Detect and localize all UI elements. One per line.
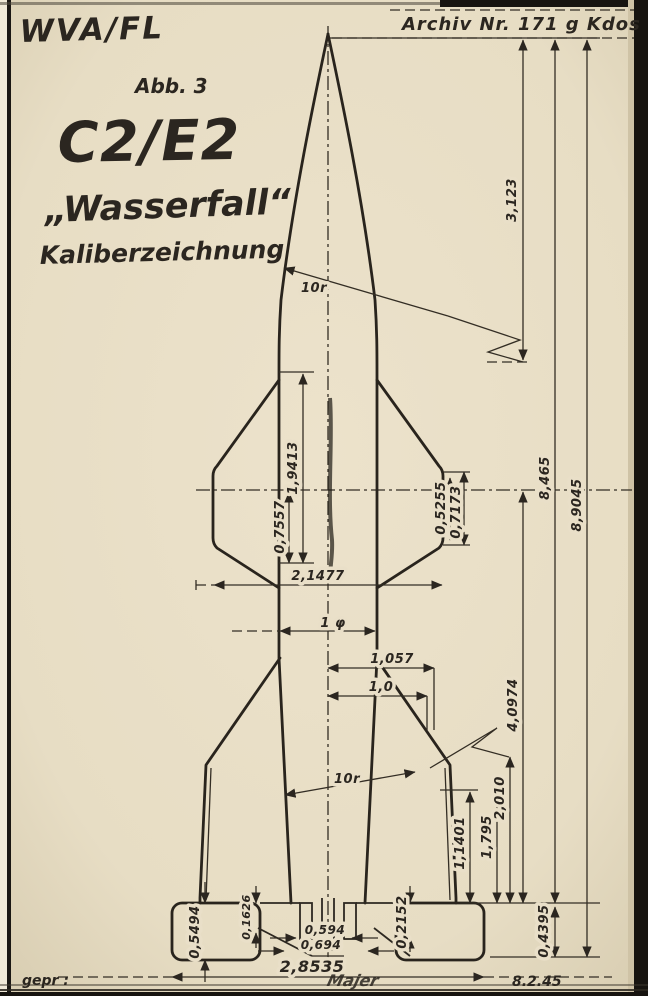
dim-01626: 0,1626 [240, 894, 253, 939]
signature: Majer [325, 971, 382, 990]
dim-05255: 0,5255 [434, 481, 449, 534]
nose-radius-label: 10r [301, 281, 328, 296]
dim-2010: 2,010 [493, 776, 508, 820]
caliber-drawing: WVA/FL Abb. 3 C2/E2 „Wasserfall“ Kaliber… [0, 0, 648, 996]
tail-radius-label: 10r [334, 772, 361, 787]
dim-02152: 0,2152 [395, 895, 410, 948]
date-label: 8.2.45 [512, 974, 562, 990]
dim-07173: 0,7173 [449, 485, 464, 538]
archive-number: Archiv Nr. 171 g Kdos [400, 14, 641, 35]
approved-label: gepr : [22, 973, 69, 989]
type-designation: C2/E2 [57, 108, 241, 176]
dim-caliber: 1 φ [320, 616, 345, 631]
dim-midfin-chord: 1,9413 [286, 441, 301, 494]
dim-midfin-lower: 0,7557 [273, 500, 288, 554]
figure-number: Abb. 3 [133, 74, 208, 98]
dim-1795: 1,795 [480, 815, 495, 859]
dim-length-to-base: 8,465 [538, 456, 553, 500]
dim-nose-length: 3,123 [505, 178, 520, 222]
dim-overall-length: 8,9045 [570, 478, 585, 531]
dim-11401: 1,1401 [453, 816, 468, 869]
org-label: WVA/FL [19, 10, 164, 50]
dim-base-height: 0,4395 [537, 904, 552, 957]
dim-rudder-box-height: 0,5494 [188, 905, 203, 958]
dim-nozzle-width: 0,594 [305, 923, 345, 937]
dim-base-width: 0,694 [301, 938, 341, 952]
dim-midfin-span: 2,1477 [291, 569, 345, 584]
dim-10: 1,0 [369, 680, 394, 695]
dim-1057: 1,057 [370, 652, 414, 667]
dim-tail-section: 4,0974 [506, 678, 521, 732]
scanned-drawing-sheet: WVA/FL Abb. 3 C2/E2 „Wasserfall“ Kaliber… [0, 0, 648, 996]
scan-smudge [330, 398, 332, 578]
